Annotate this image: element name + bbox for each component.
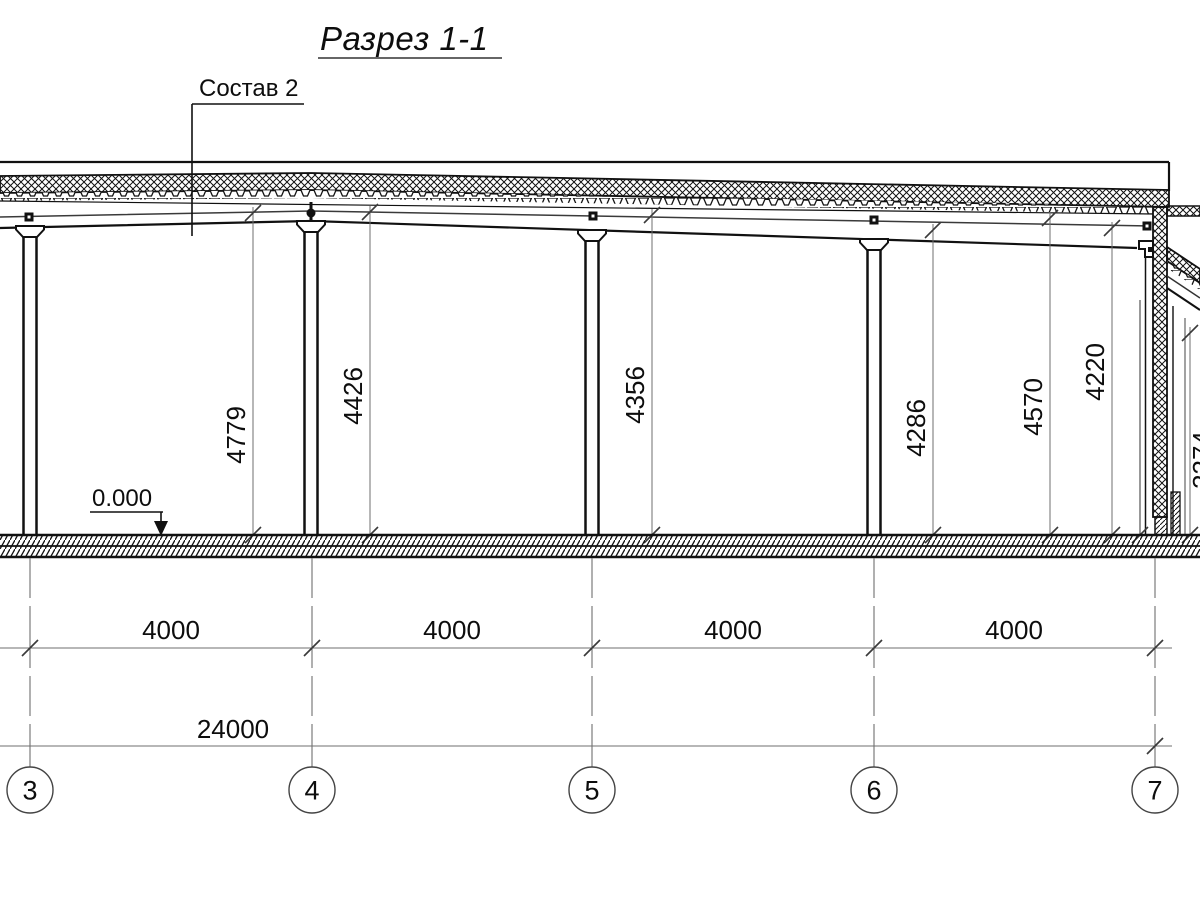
level-mark: 0.000 [92,487,152,511]
bay-dim-3: 4000 [704,617,762,643]
bay-dim-4: 4000 [985,617,1043,643]
wall-footing [1155,517,1167,535]
vdim-height-3: 4356 [622,366,648,424]
axis-label-7: 7 [1147,778,1162,805]
vdim-height-2: 4426 [340,367,366,425]
axis-label-6: 6 [866,778,881,805]
axis-label-5: 5 [584,778,599,805]
composition-label: Состав 2 [199,77,299,101]
axis-label-3: 3 [22,778,37,805]
vdim-height-1: 4779 [223,406,249,464]
column-axis-3 [16,226,44,535]
vdim-height-7: 3374 [1189,431,1200,489]
drawing-title: Разрез 1-1 [320,22,489,55]
axis-label-4: 4 [304,778,319,805]
column-axis-4 [297,221,325,535]
drawing-linework [0,0,1200,900]
column-axis-5 [578,230,606,535]
level-mark-leader [90,512,168,536]
fixing-plate-icons [25,212,1152,231]
lower-roof-footing [1171,492,1180,535]
section-drawing: Разрез 1-1 Состав 2 0.000 4779 4426 4356… [0,0,1200,900]
vdim-height-6: 4220 [1082,343,1108,401]
overall-dimension-line [0,738,1172,754]
vdim-height-4: 4286 [903,399,929,457]
floor-slab [0,535,1200,557]
column-axis-6 [860,239,888,535]
vdim-height-5: 4570 [1020,378,1046,436]
right-wall [1139,207,1167,535]
composition-leader [192,104,304,236]
level-arrow-icon [154,521,168,536]
bay-dim-1: 4000 [142,617,200,643]
vertical-dimension-ticks [245,204,1198,543]
vertical-dimension-lines [253,206,1190,535]
overall-dim: 24000 [197,716,269,742]
beam-bottom-line [0,221,1137,248]
bay-dim-2: 4000 [423,617,481,643]
